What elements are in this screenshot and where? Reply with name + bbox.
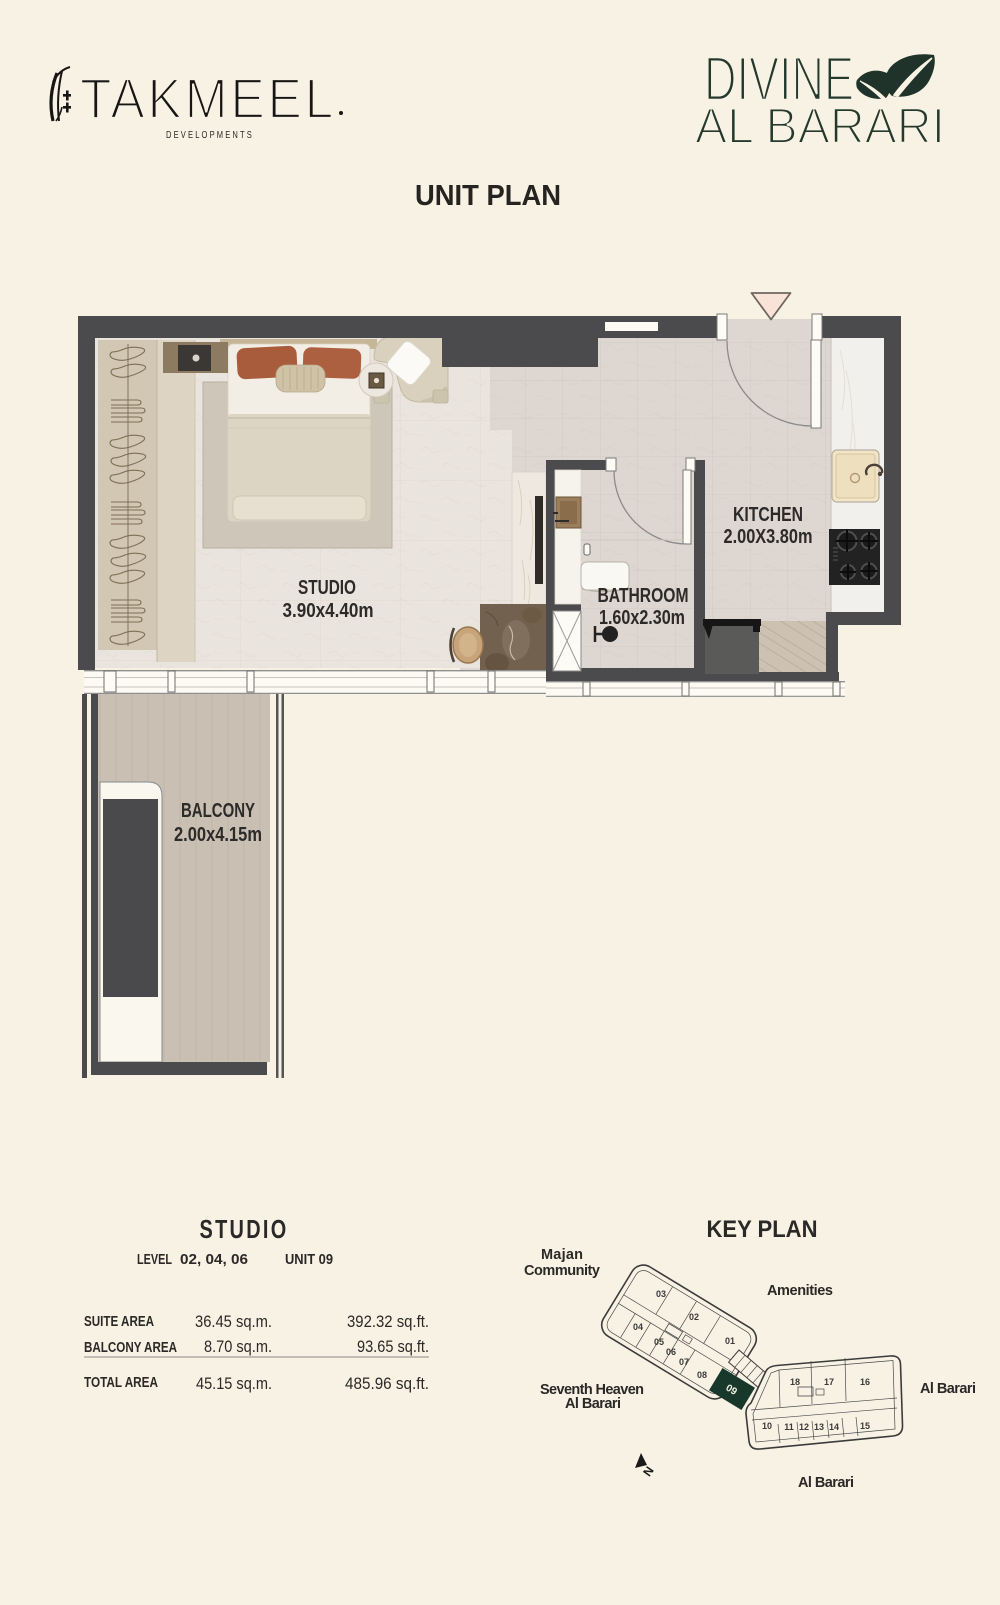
svg-text:2.00x4.15m: 2.00x4.15m — [174, 824, 262, 846]
svg-text:15: 15 — [860, 1421, 870, 1431]
svg-text:04: 04 — [633, 1322, 643, 1332]
svg-text:06: 06 — [666, 1347, 676, 1357]
svg-text:BALCONY AREA: BALCONY AREA — [84, 1340, 177, 1356]
svg-text:STUDIO: STUDIO — [200, 1214, 289, 1244]
svg-text:LEVEL: LEVEL — [137, 1252, 172, 1268]
svg-text:10: 10 — [762, 1421, 772, 1431]
svg-text:UNIT PLAN: UNIT PLAN — [415, 180, 561, 212]
svg-text:02: 02 — [689, 1312, 699, 1322]
svg-text:STUDIO: STUDIO — [298, 577, 356, 599]
svg-text:KEY PLAN: KEY PLAN — [707, 1216, 818, 1243]
svg-text:BALCONY: BALCONY — [181, 800, 255, 822]
svg-text:392.32 sq.ft.: 392.32 sq.ft. — [347, 1313, 429, 1331]
svg-text:12: 12 — [799, 1422, 809, 1432]
svg-text:Majan: Majan — [541, 1247, 583, 1263]
svg-text:11: 11 — [784, 1422, 794, 1432]
svg-text:Al Barari: Al Barari — [920, 1381, 976, 1397]
svg-text:03: 03 — [656, 1289, 666, 1299]
svg-text:45.15 sq.m.: 45.15 sq.m. — [196, 1375, 272, 1393]
svg-text:KITCHEN: KITCHEN — [733, 504, 803, 526]
svg-text:SUITE AREA: SUITE AREA — [84, 1314, 154, 1330]
svg-text:3.90x4.40m: 3.90x4.40m — [283, 600, 374, 622]
svg-text:AL BARARI: AL BARARI — [695, 98, 945, 154]
svg-text:36.45 sq.m.: 36.45 sq.m. — [195, 1313, 272, 1331]
svg-text:Al Barari: Al Barari — [565, 1396, 621, 1412]
svg-text:Al Barari: Al Barari — [798, 1475, 854, 1491]
svg-text:BATHROOM: BATHROOM — [598, 585, 689, 607]
svg-text:02, 04, 06: 02, 04, 06 — [180, 1252, 248, 1268]
svg-text:18: 18 — [790, 1377, 800, 1387]
svg-text:TOTAL AREA: TOTAL AREA — [84, 1375, 158, 1391]
svg-text:8.70 sq.m.: 8.70 sq.m. — [204, 1338, 272, 1356]
svg-text:16: 16 — [860, 1377, 870, 1387]
svg-text:01: 01 — [725, 1336, 735, 1346]
svg-text:08: 08 — [697, 1370, 707, 1380]
svg-text:1.60x2.30m: 1.60x2.30m — [599, 607, 685, 629]
svg-text:13: 13 — [814, 1422, 824, 1432]
svg-text:2.00X3.80m: 2.00X3.80m — [724, 526, 813, 548]
svg-text:Community: Community — [524, 1263, 600, 1279]
svg-text:UNIT 09: UNIT 09 — [285, 1252, 333, 1268]
svg-text:14: 14 — [829, 1422, 839, 1432]
svg-text:17: 17 — [824, 1377, 834, 1387]
svg-text:485.96 sq.ft.: 485.96 sq.ft. — [345, 1375, 429, 1393]
svg-text:Amenities: Amenities — [767, 1283, 833, 1299]
svg-text:07: 07 — [679, 1357, 689, 1367]
svg-text:TAKMEEL: TAKMEEL — [80, 67, 336, 131]
svg-text:DEVELOPMENTS: DEVELOPMENTS — [166, 129, 254, 141]
svg-text:93.65 sq.ft.: 93.65 sq.ft. — [357, 1338, 429, 1356]
svg-text:05: 05 — [654, 1337, 664, 1347]
